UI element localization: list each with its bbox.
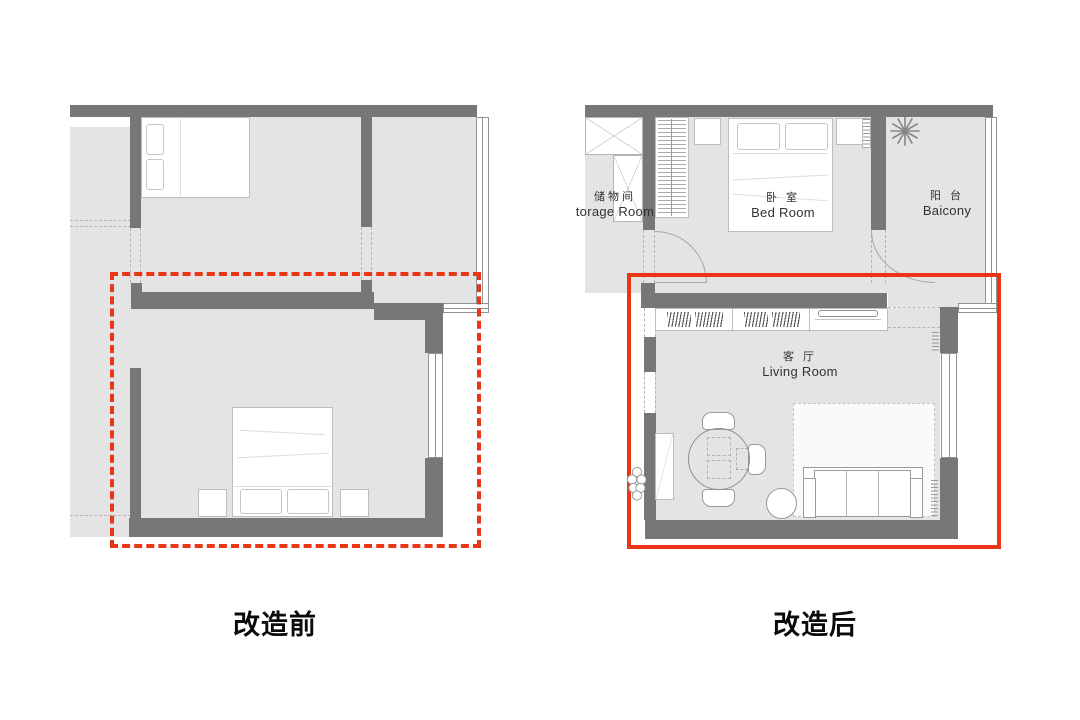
storage-cabinet [585,117,643,155]
room-label-bedroom: 卧 室 Bed Room [723,192,843,221]
room-label-storage: 储物间 torage Room [560,191,670,220]
pillow [785,123,828,150]
room-label-balcony-zh: 阳 台 [887,190,1007,203]
highlight-solid-rectangle [627,273,1001,549]
wall-segment [585,105,993,117]
room-label-balcony: 阳 台 Baicony [887,190,1007,219]
plant-icon [888,114,922,148]
room-label-storage-zh: 储物间 [560,191,670,204]
pillow [737,123,780,150]
wall-segment [871,117,886,230]
nightstand [836,118,863,145]
floor-plan-comparison: 改造前 [0,0,1080,720]
nightstand [694,118,721,145]
blanket-edge-line [733,153,828,154]
window-grille [862,118,871,148]
room-label-storage-en: torage Room [560,205,670,220]
room-label-balcony-en: Baicony [887,204,1007,219]
room-label-bedroom-en: Bed Room [723,206,843,221]
room-label-bedroom-zh: 卧 室 [723,192,843,205]
bush-icon [626,466,648,502]
after-plan: 储物间 torage Room 卧 室 Bed Room 阳 台 Baicony… [0,0,1080,720]
after-caption: 改造后 [630,603,1000,642]
wardrobe-rod [671,119,672,216]
